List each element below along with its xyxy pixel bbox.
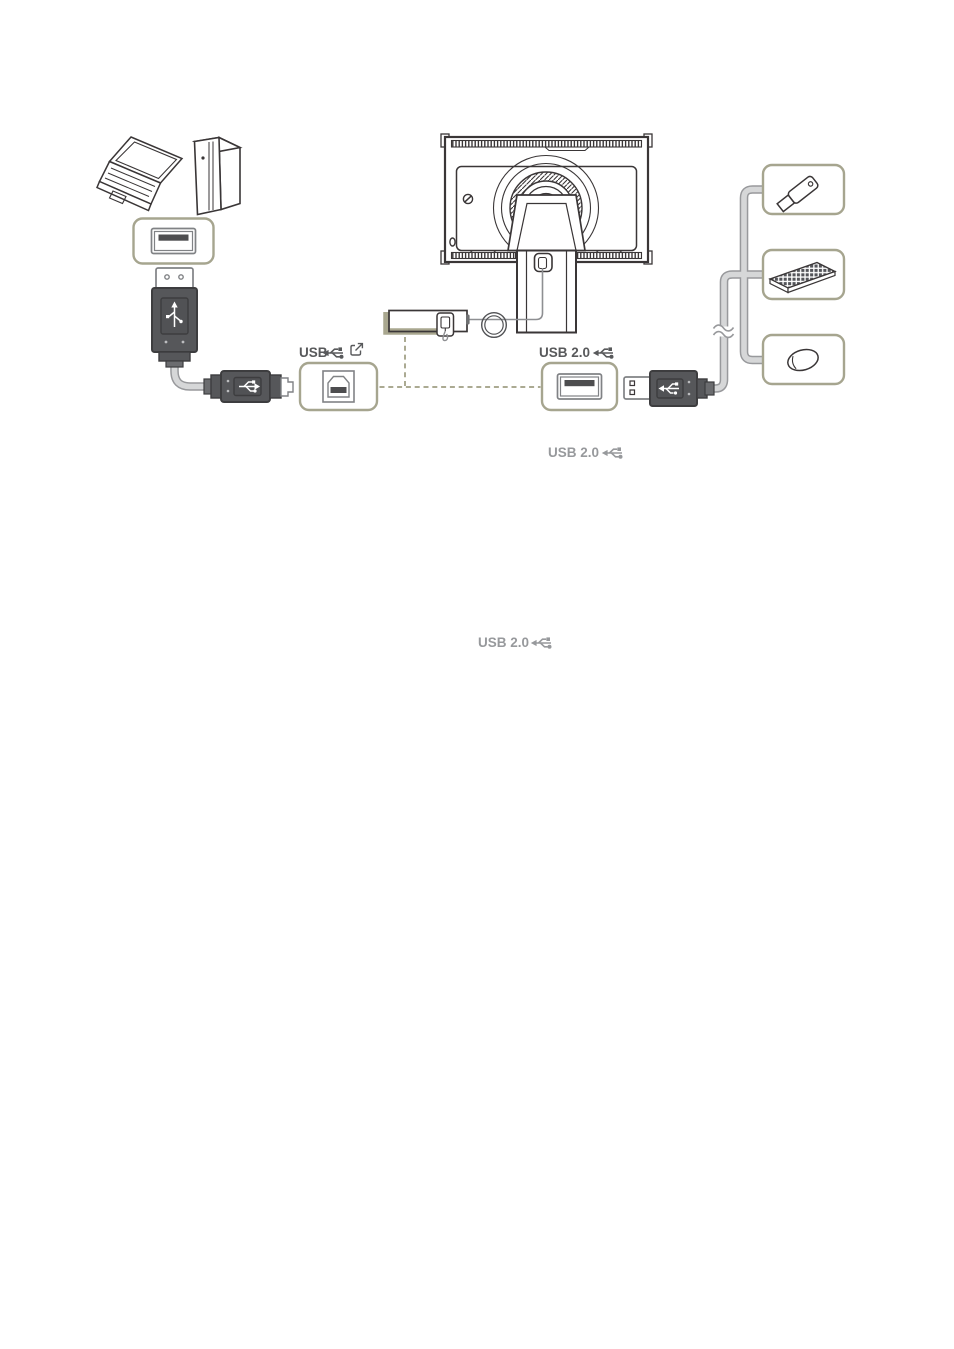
usb-trident-icon [602,447,623,458]
usb-b-plug [204,371,293,402]
flash-drive-box [763,165,844,214]
usb-hub-port-box [542,363,617,410]
desktop-pc-icon [195,138,241,215]
pc-usb-port-box [134,219,214,264]
monitor-rear-icon [441,134,652,333]
usb-upstream-label-row: USB [299,344,362,360]
usb-trident-icon [531,637,552,648]
usb-cable-right [713,190,762,389]
lock-slot-icon [450,238,455,246]
usb-trident-icon [593,347,614,358]
usb-note-caption: USB 2.0 [478,635,529,650]
usb-downstream-label-row: USB 2.0 [539,345,614,360]
cable-break-icon [714,325,734,337]
mouse-box [763,335,844,384]
laptop-icon [97,137,182,211]
ferrite-bead [466,315,470,325]
usb-a-plug-left [152,268,197,367]
usb-upstream-label: USB [299,345,328,360]
usb-b-port-box [300,363,377,410]
screw-icon [463,194,472,203]
monitor-stand [508,195,585,333]
usb-a-plug-right [624,371,714,406]
usb-a-port-icon [152,229,196,254]
usb-connector-caption-row: USB 2.0 [548,445,623,460]
usb-a-port-icon [558,374,602,399]
usb-connector-caption: USB 2.0 [548,445,599,460]
dashed-connection-line [380,337,541,387]
usb-note-caption-row: USB 2.0 [478,635,552,650]
usb-downstream-label: USB 2.0 [539,345,590,360]
usb-b-port-icon [323,371,354,402]
manual-page: USB [0,0,954,1349]
usb-connection-diagram: USB [0,0,954,1349]
keyboard-box [763,250,844,299]
upstream-arrow-icon [351,344,362,355]
usb-port-strip [387,311,468,341]
